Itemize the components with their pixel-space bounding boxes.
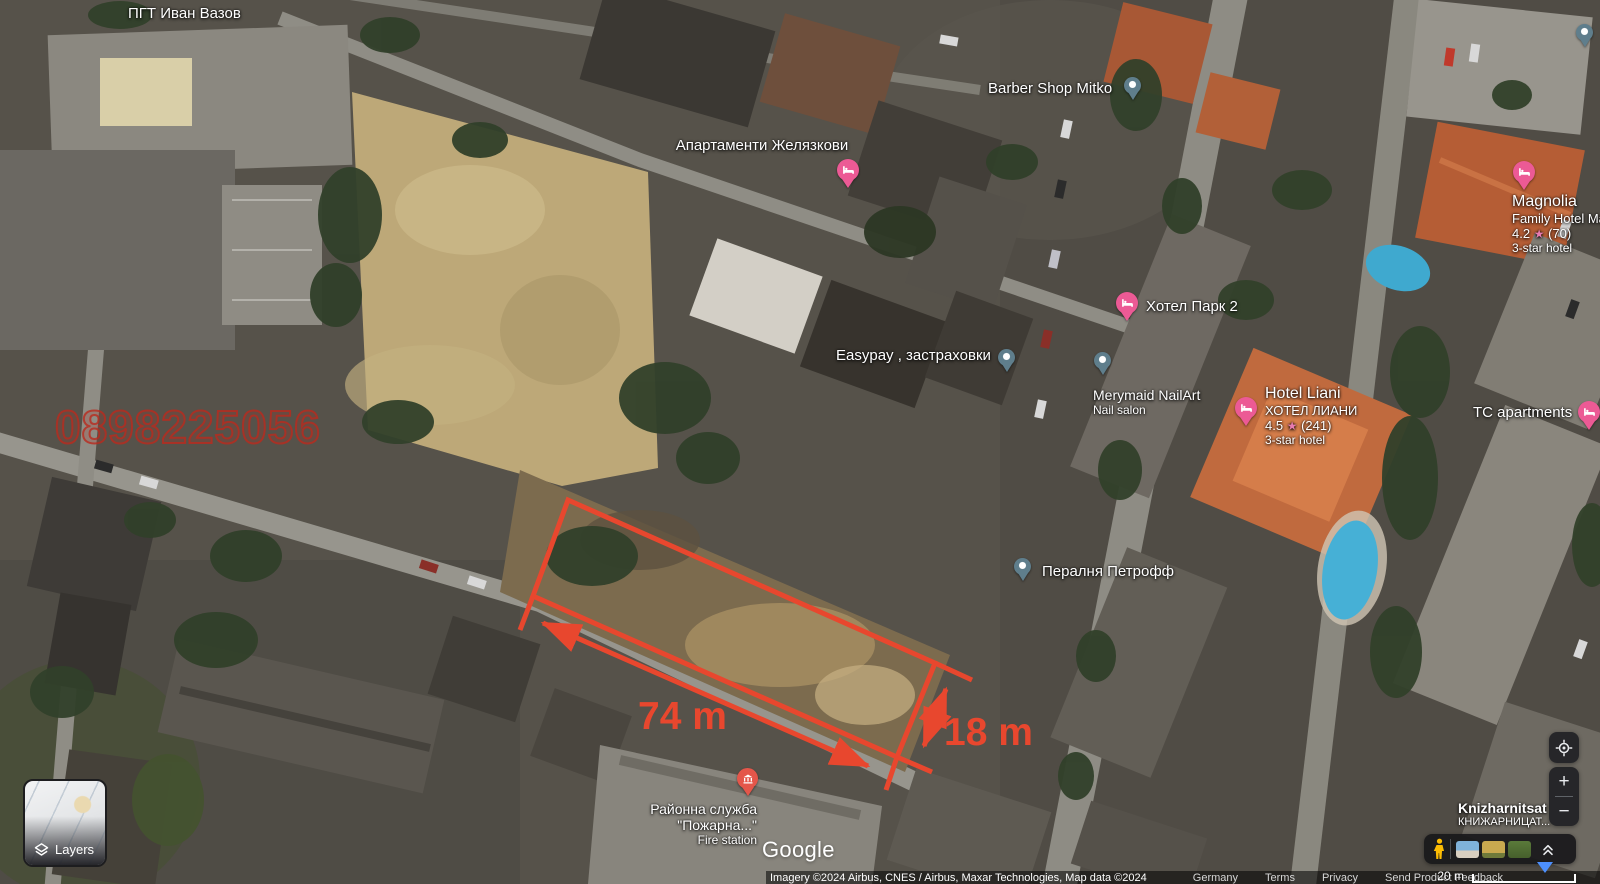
- poi-pin-barber[interactable]: [1124, 77, 1141, 94]
- imagery-thumbnail-trees[interactable]: [1508, 841, 1531, 858]
- institution-icon: [742, 773, 754, 785]
- poi-label: Barber Shop Mitko: [988, 80, 1112, 97]
- street-view-bar: [1424, 834, 1576, 864]
- hotel-pin-liani[interactable]: [1235, 397, 1257, 419]
- layers-label: Layers: [55, 842, 94, 857]
- expand-chevrons-icon[interactable]: [1540, 841, 1556, 857]
- poi-sublabel: КНИЖАРНИЦАТ...: [1458, 816, 1550, 828]
- rating-value: 4.2: [1512, 226, 1530, 241]
- poi-label-group: Hotel Liani ХОТЕЛ ЛИАНИ 4.5 ★ (241) 3-st…: [1265, 385, 1357, 447]
- hotel-pin-park2[interactable]: [1116, 292, 1138, 314]
- scale-bar: [1472, 874, 1576, 883]
- poi-label: Merymaid NailArt: [1093, 387, 1200, 403]
- poi-label: Easypay , застраховки: [836, 347, 991, 364]
- map-canvas[interactable]: 74 m 18 m 0898225056 ПГТ Иван Вазов Апар…: [0, 0, 1600, 884]
- bed-icon: [1240, 403, 1253, 413]
- zoom-control: + −: [1549, 767, 1579, 826]
- poi-label-group: Районна служба "Пожарна..." Fire station: [650, 801, 757, 847]
- rating-value: 4.5: [1265, 418, 1283, 433]
- poi-category: 3-star hotel: [1265, 433, 1357, 447]
- bed-icon: [1121, 298, 1134, 308]
- poi-label-line2: "Пожарна...": [650, 817, 757, 833]
- poi-label: TC apartments: [1473, 404, 1572, 421]
- poi-sublabel: ХОТЕЛ ЛИАНИ: [1265, 403, 1357, 418]
- poi-label-group: Merymaid NailArt Nail salon: [1093, 387, 1200, 417]
- street-view-pointer: [1537, 862, 1553, 873]
- imagery-credit: Imagery ©2024 Airbus, CNES / Airbus, Max…: [770, 872, 1147, 884]
- poi-pin-easypay[interactable]: [998, 349, 1015, 366]
- star-icon: ★: [1534, 227, 1545, 241]
- bed-icon: [842, 165, 855, 175]
- poi-label-group: Magnolia Family Hotel Mag 4.2 ★ (70) 3-s…: [1512, 193, 1600, 255]
- poi-pin-unlabeled[interactable]: [1576, 24, 1593, 41]
- civic-pin-fire-station[interactable]: [737, 768, 758, 789]
- google-logo: Google: [762, 837, 835, 863]
- phone-watermark: 0898225056: [55, 400, 321, 454]
- poi-pin-merymaid[interactable]: [1094, 352, 1111, 369]
- poi-label: Hotel Liani: [1265, 385, 1357, 403]
- poi-label: Пералня Петрофф: [1042, 563, 1174, 580]
- region-link[interactable]: Germany: [1193, 872, 1238, 884]
- poi-label: Knizharnitsat: [1458, 800, 1550, 816]
- hotel-pin-magnolia[interactable]: [1513, 161, 1535, 183]
- poi-pin-peralnya[interactable]: [1014, 558, 1031, 575]
- bar-divider: [1450, 839, 1451, 859]
- privacy-link[interactable]: Privacy: [1322, 872, 1358, 884]
- google-maps-satellite-view: { "map_area_label": "ПГТ Иван Вазов", "w…: [0, 0, 1600, 884]
- star-icon: ★: [1287, 419, 1298, 433]
- imagery-thumbnail-field[interactable]: [1482, 841, 1505, 858]
- district-label: ПГТ Иван Вазов: [128, 5, 241, 22]
- poi-label: Апартаменти Желязкови: [676, 137, 849, 154]
- terms-link[interactable]: Terms: [1265, 872, 1295, 884]
- width-label: 18 m: [944, 711, 1033, 754]
- hotel-pin-apartamenti[interactable]: [837, 159, 859, 181]
- zoom-out-button[interactable]: −: [1549, 797, 1579, 826]
- poi-sublabel: Fire station: [650, 833, 757, 847]
- poi-label: Magnolia: [1512, 193, 1600, 211]
- poi-label: Хотел Парк 2: [1146, 298, 1238, 315]
- poi-rating: 4.5 ★ (241): [1265, 418, 1357, 433]
- hotel-pin-tc-apartments[interactable]: [1578, 401, 1600, 423]
- review-count: (70): [1548, 226, 1571, 241]
- poi-rating: 4.2 ★ (70): [1512, 226, 1600, 241]
- poi-label-group: Knizharnitsat КНИЖАРНИЦАТ...: [1458, 800, 1550, 828]
- width-arrow: [924, 689, 946, 746]
- zoom-in-button[interactable]: +: [1549, 767, 1579, 796]
- poi-sublabel: Nail salon: [1093, 403, 1200, 417]
- poi-sublabel: Family Hotel Mag: [1512, 211, 1600, 226]
- scale-label: 20 m: [1437, 869, 1464, 883]
- length-label: 74 m: [638, 695, 727, 738]
- layers-icon: [33, 841, 50, 858]
- my-location-icon: [1555, 739, 1573, 757]
- bed-icon: [1518, 167, 1531, 177]
- layers-button[interactable]: Layers: [23, 779, 107, 867]
- poi-label: Районна служба: [650, 801, 757, 817]
- review-count: (241): [1301, 418, 1331, 433]
- map-scale: 20 m: [1437, 869, 1576, 883]
- bed-icon: [1583, 407, 1596, 417]
- poi-category: 3-star hotel: [1512, 241, 1600, 255]
- my-location-button[interactable]: [1549, 732, 1579, 763]
- pegman-icon[interactable]: [1432, 838, 1447, 860]
- imagery-thumbnail-sky[interactable]: [1456, 841, 1479, 858]
